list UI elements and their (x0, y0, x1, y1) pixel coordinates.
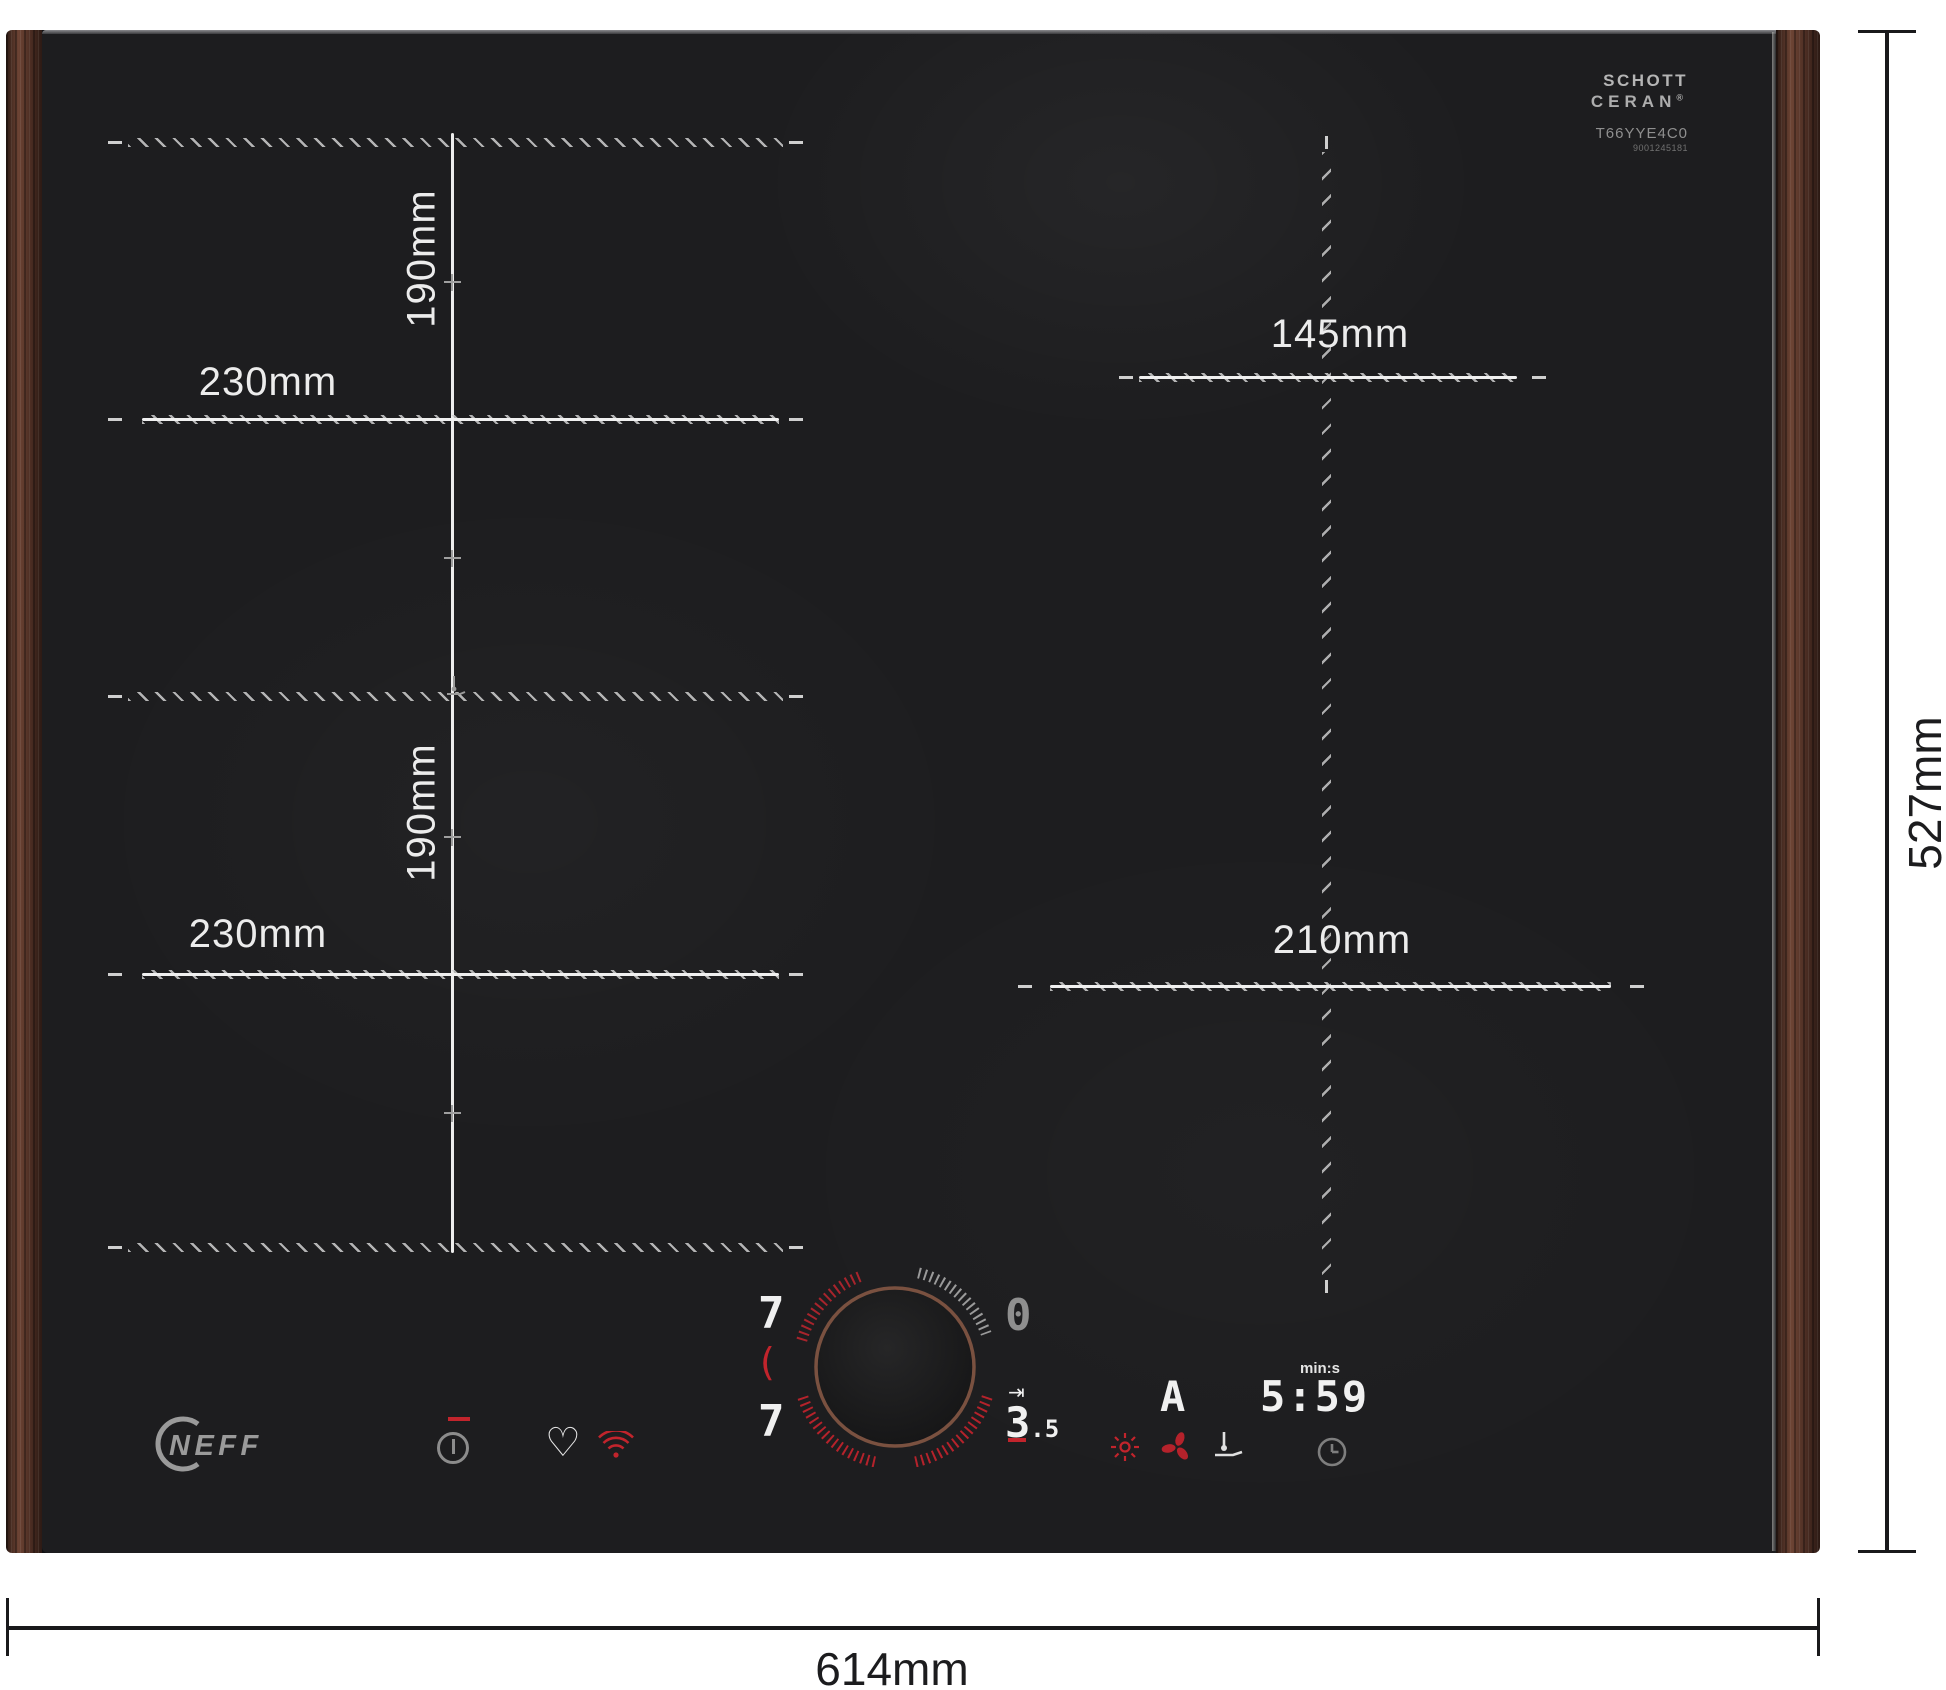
plus-tick (444, 274, 461, 291)
plus-tick (444, 550, 461, 567)
plus-tick (444, 829, 461, 846)
dash-end (789, 973, 803, 976)
display-timer: 5:59 (1260, 1372, 1369, 1421)
zone-width-line-230-bottom (142, 973, 779, 976)
wood-trim-right (1776, 30, 1820, 1553)
wood-trim-left (6, 30, 42, 1553)
zone-label-210: 210mm (1212, 918, 1472, 963)
clock-icon (1316, 1436, 1348, 1468)
height-dimension-label: 527mm (1898, 663, 1946, 923)
zone-width-line-230-top (142, 418, 779, 421)
display-right-zone-top: 0 (1005, 1290, 1032, 1341)
fan-icon (1160, 1430, 1194, 1464)
twist-knob (795, 1267, 995, 1467)
temperature-probe-pan-icon (1211, 1428, 1247, 1462)
zone-select-bracket: ( (760, 1340, 775, 1384)
dash-end (108, 141, 122, 144)
height-dimension-cap-bottom (1858, 1550, 1916, 1553)
zone-label-190-top: 190mm (400, 129, 445, 389)
width-dimension-cap-left (6, 1598, 9, 1656)
glass-top-edge-highlight (42, 30, 1782, 34)
schott-line2: CERAN® (1588, 91, 1688, 112)
zone-label-190-bottom: 190mm (400, 683, 445, 943)
zone-width-line-210 (1050, 985, 1611, 988)
value-dec: .5 (1030, 1415, 1059, 1443)
display-left-zone-top: 7 (758, 1288, 785, 1339)
schott-ceran-branding: SCHOTT CERAN® T66YYE4C0 9001245181 (1588, 70, 1688, 155)
zone-label-145: 145mm (1210, 312, 1470, 357)
serial-number: 9001245181 (1588, 143, 1688, 154)
zone-label-230-top: 230mm (138, 360, 398, 405)
model-number: T66YYE4C0 (1588, 125, 1688, 144)
height-dimension-line (1885, 30, 1889, 1553)
registered-mark: ® (1676, 93, 1688, 103)
sun-icon (1109, 1431, 1141, 1463)
heart-icon: ♡ (545, 1420, 581, 1466)
dash-end (108, 1246, 122, 1249)
flex-zone-bottom-dashed-line (128, 1243, 783, 1252)
dash-end (1325, 1280, 1328, 1293)
value-active-underline (1008, 1438, 1026, 1442)
neff-logo-text: NEFF (169, 1430, 263, 1462)
height-dimension-cap-top (1858, 30, 1916, 33)
dash-end (1018, 985, 1032, 988)
plus-tick (444, 1105, 461, 1122)
flex-zone-top-dashed-line (128, 138, 783, 147)
zone-label-230-bottom: 230mm (128, 912, 388, 957)
product-image: 230mm 230mm 190mm 190mm 145mm 210mm SCHO… (0, 0, 1946, 1690)
display-left-zone-bottom: 7 (758, 1396, 785, 1447)
dash-end (108, 418, 122, 421)
width-dimension-line (6, 1626, 1820, 1630)
dash-end (108, 695, 122, 698)
knob-ring (816, 1288, 974, 1446)
power-standby-icon (437, 1432, 469, 1464)
zone-width-line-145 (1139, 376, 1517, 379)
dash-end (1119, 376, 1133, 379)
dash-end (789, 695, 803, 698)
width-dimension-cap-right (1817, 1598, 1820, 1656)
zone-active-dash (448, 1417, 470, 1421)
pan-probe-junction-icon (444, 672, 468, 700)
schott-line1: SCHOTT (1588, 70, 1688, 91)
display-auto-indicator: A (1160, 1372, 1185, 1421)
power-bar (452, 1439, 455, 1454)
dash-end (789, 141, 803, 144)
dash-end (108, 973, 122, 976)
dash-end (789, 1246, 803, 1249)
dash-end (789, 418, 803, 421)
dash-end (1532, 376, 1546, 379)
dash-end (1630, 985, 1644, 988)
wifi-icon (598, 1431, 634, 1459)
neff-logo: NEFF (152, 1412, 302, 1478)
width-dimension-label: 614mm (762, 1642, 1022, 1690)
dash-end (1325, 136, 1328, 149)
